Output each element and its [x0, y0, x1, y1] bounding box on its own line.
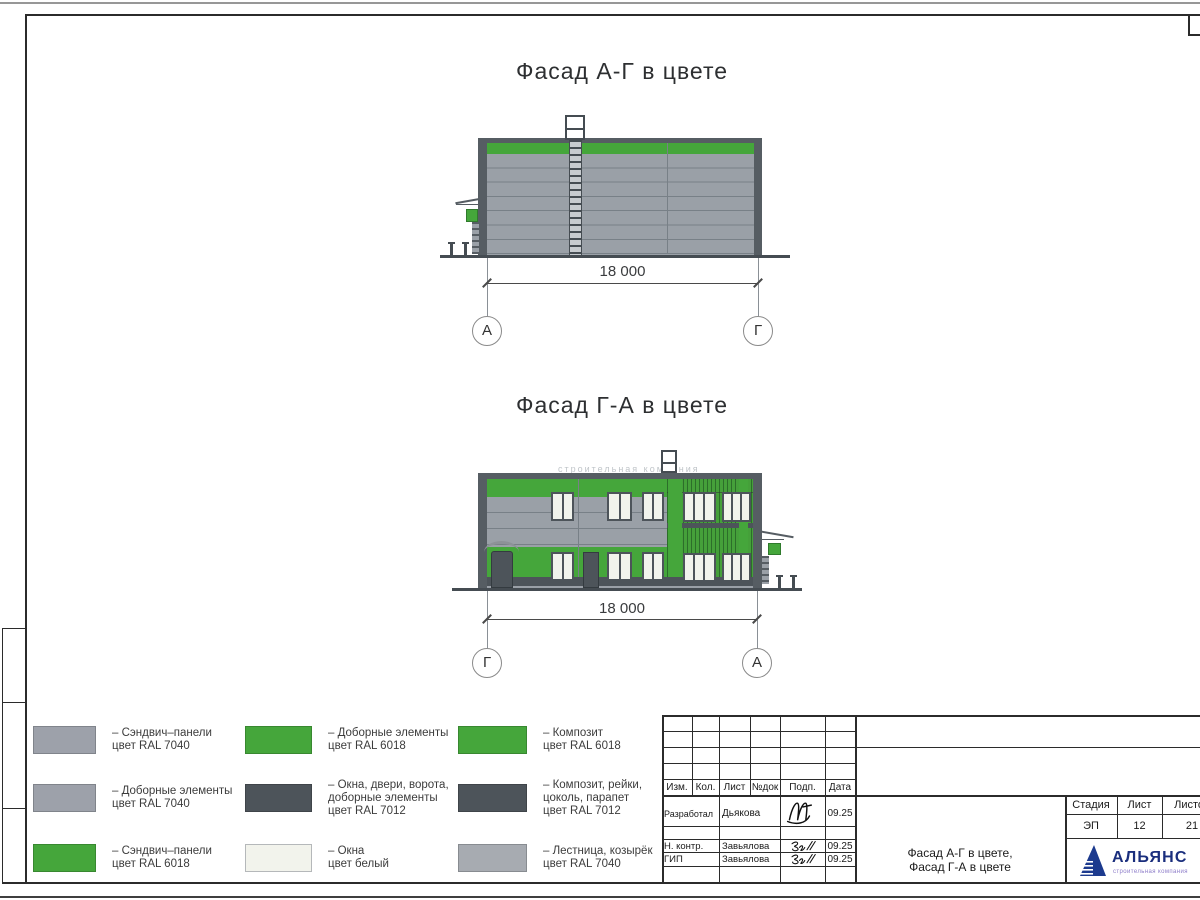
legend-label: – Окна, двери, ворота, доборные элементы…	[328, 779, 449, 818]
window	[642, 492, 664, 521]
row-date: 09.25	[825, 854, 855, 865]
legend-item: – Композит, рейки, цоколь, парапет цвет …	[458, 784, 642, 812]
window	[642, 552, 664, 581]
dimension-label: 18 000	[487, 263, 758, 280]
window	[683, 492, 716, 522]
col-header-izm: Изм.	[662, 782, 692, 793]
sheets-total-header: Листов	[1162, 799, 1200, 811]
color-swatch	[458, 726, 527, 754]
legend-label: – Доборные элементы цвет RAL 7040	[112, 785, 232, 811]
legend-label: – Композит, рейки, цоколь, парапет цвет …	[543, 779, 642, 818]
color-swatch	[33, 844, 96, 872]
frame-left	[25, 14, 27, 884]
sandwich-panels	[487, 154, 754, 254]
legend-label: – Композит цвет RAL 6018	[543, 727, 621, 753]
divider-line	[662, 731, 855, 732]
facade-ga-title: Фасад Г-А в цвете	[460, 392, 784, 419]
sheet-header: Лист	[1117, 799, 1162, 811]
extension-line	[758, 258, 759, 316]
axis-marker-g: Г	[472, 648, 502, 678]
frame-top	[25, 14, 1200, 16]
frame-corner-box	[1188, 14, 1200, 36]
legend-item: – Доборные элементы цвет RAL 7040	[33, 784, 232, 812]
divider-line	[662, 795, 1200, 797]
legend-item: – Окна, двери, ворота, доборные элементы…	[245, 784, 449, 812]
signature-scribble	[786, 840, 822, 852]
canopy-post	[479, 196, 481, 207]
legend-label: – Сэндвич–панели цвет RAL 7040	[112, 727, 212, 753]
ladder	[569, 140, 582, 255]
axis-marker-a: А	[742, 648, 772, 678]
signature-scribble	[784, 797, 824, 826]
divider-line	[662, 747, 1200, 748]
paper-bottom-edge	[0, 896, 1200, 898]
row-role: ГИП	[664, 854, 720, 865]
margin-strip-divider	[2, 628, 25, 629]
legend-item: – Окна цвет белый	[245, 844, 389, 872]
panel-joint	[578, 479, 579, 577]
divider-line	[662, 826, 855, 827]
row-name: Завьялова	[722, 841, 780, 852]
row-role: Разработал	[664, 809, 720, 819]
margin-strip-line	[2, 628, 3, 884]
col-header-podp: Подп.	[780, 782, 825, 793]
legend-item: – Композит цвет RAL 6018	[458, 726, 621, 754]
ground-line	[440, 255, 790, 258]
alliance-pyramid-icon	[1080, 845, 1106, 876]
window	[722, 553, 751, 582]
wall-box	[768, 543, 781, 555]
legend-item: – Сэндвич–панели цвет RAL 6018	[33, 844, 212, 872]
wall-box	[466, 209, 478, 222]
divider-line	[1065, 838, 1200, 839]
green-band-upper	[487, 479, 667, 497]
col-header-ndoc: №док	[750, 782, 780, 793]
stage-value: ЭП	[1065, 820, 1117, 832]
window	[551, 552, 574, 581]
color-swatch	[33, 784, 96, 812]
color-swatch	[458, 784, 527, 812]
legend-label: – Сэндвич–панели цвет RAL 6018	[112, 845, 212, 871]
axis-marker-a: А	[472, 316, 502, 346]
window	[607, 492, 632, 521]
stage-header: Стадия	[1065, 799, 1117, 811]
divider-line	[662, 866, 855, 867]
divider-line	[662, 839, 855, 840]
row-name: Завьялова	[722, 854, 780, 865]
composite-column	[668, 479, 682, 577]
col-header-data: Дата	[825, 782, 855, 793]
legend-label: – Лестница, козырёк цвет RAL 7040	[543, 845, 653, 871]
divider-line	[1065, 814, 1200, 815]
canopy	[758, 530, 794, 538]
drawing-sheet: Фасад А-Г в цвете 18 000 А Г Фасад Г-А в…	[0, 0, 1200, 900]
edge-column-left	[478, 473, 487, 588]
company-subtitle: строительная компания	[1113, 869, 1188, 875]
facade-ag-title: Фасад А-Г в цвете	[460, 58, 784, 85]
green-band	[487, 143, 754, 154]
legend-label: – Окна цвет белый	[328, 845, 389, 871]
row-date: 09.25	[825, 841, 855, 852]
document-title: Фасад А-Г в цвете, Фасад Г-А в цвете	[857, 846, 1063, 874]
divider-line	[662, 852, 855, 853]
color-swatch	[33, 726, 96, 754]
col-header-kol: Кол.	[692, 782, 719, 793]
edge-column-right	[754, 138, 762, 257]
color-swatch	[245, 784, 312, 812]
margin-strip-divider	[2, 808, 25, 809]
roof-hatch	[661, 450, 677, 473]
sheets-total: 21	[1162, 820, 1200, 832]
row-name: Дьякова	[722, 808, 779, 819]
wall-ladder-rungs	[762, 556, 769, 584]
panel-joint	[667, 143, 668, 254]
window	[722, 492, 751, 522]
wall-ladder-rungs	[472, 222, 479, 254]
roof-ladder-cage	[565, 115, 585, 140]
color-swatch	[458, 844, 527, 872]
dimension-label: 18 000	[487, 600, 757, 617]
col-header-list: Лист	[719, 782, 750, 793]
row-role: Н. контр.	[664, 841, 720, 852]
divider-line	[662, 763, 855, 764]
legend-item: – Лестница, козырёк цвет RAL 7040	[458, 844, 653, 872]
legend-label: – Доборные элементы цвет RAL 6018	[328, 727, 448, 753]
divider-line	[662, 779, 855, 780]
company-name: АЛЬЯНС	[1112, 849, 1188, 867]
door	[583, 552, 599, 588]
entrance-door	[491, 551, 513, 588]
window	[551, 492, 574, 521]
paper-top-edge	[0, 2, 1200, 4]
dimension-line	[487, 619, 757, 620]
canopy-edge	[456, 204, 480, 205]
window	[607, 552, 632, 581]
sandwich-panels	[487, 497, 667, 547]
window	[683, 553, 716, 582]
signature-scribble	[786, 853, 822, 865]
row-date: 09.25	[825, 808, 855, 819]
legend-item: – Сэндвич–панели цвет RAL 7040	[33, 726, 212, 754]
canopy-edge	[760, 539, 784, 540]
color-swatch	[245, 844, 312, 872]
ground-line	[452, 588, 802, 591]
dimension-line	[487, 283, 758, 284]
divider-line	[780, 715, 781, 884]
sheet-number: 12	[1117, 820, 1162, 832]
color-swatch	[245, 726, 312, 754]
legend-item: – Доборные элементы цвет RAL 6018	[245, 726, 448, 754]
margin-strip-divider	[2, 702, 25, 703]
axis-marker-g: Г	[743, 316, 773, 346]
